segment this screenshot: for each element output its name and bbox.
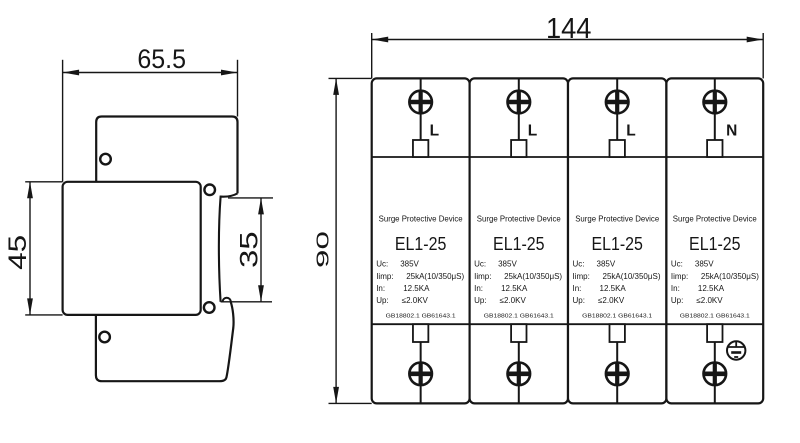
svg-text:L: L	[626, 123, 635, 140]
svg-text:GB18802.1 GB61643.1: GB18802.1 GB61643.1	[386, 313, 456, 319]
svg-text:Surge Protective Device: Surge Protective Device	[575, 215, 660, 224]
svg-text:Iimp:: Iimp:	[376, 272, 393, 281]
svg-text:L: L	[430, 123, 439, 140]
svg-text:In:: In:	[474, 284, 483, 293]
svg-text:65.5: 65.5	[137, 44, 186, 74]
svg-text:Uc:: Uc:	[671, 260, 683, 269]
svg-text:GB18802.1 GB61643.1: GB18802.1 GB61643.1	[484, 313, 554, 319]
svg-text:25kA(10/350μS): 25kA(10/350μS)	[603, 272, 661, 281]
svg-text:45: 45	[4, 235, 32, 270]
svg-text:N: N	[726, 123, 737, 140]
svg-text:12.5KA: 12.5KA	[403, 284, 430, 293]
svg-text:385V: 385V	[498, 260, 517, 269]
svg-text:12.5KA: 12.5KA	[698, 284, 725, 293]
svg-text:In:: In:	[376, 284, 385, 293]
svg-text:L: L	[528, 123, 537, 140]
svg-text:EL1-25: EL1-25	[395, 233, 447, 254]
svg-text:In:: In:	[573, 284, 582, 293]
svg-text:25kA(10/350μS): 25kA(10/350μS)	[701, 272, 759, 281]
svg-text:385V: 385V	[695, 260, 714, 269]
svg-text:Up:: Up:	[474, 296, 486, 305]
svg-text:12.5KA: 12.5KA	[501, 284, 528, 293]
svg-text:25kA(10/350μS): 25kA(10/350μS)	[406, 272, 464, 281]
svg-text:Up:: Up:	[573, 296, 585, 305]
svg-text:≤2.0KV: ≤2.0KV	[500, 296, 527, 305]
svg-text:Surge Protective Device: Surge Protective Device	[379, 215, 464, 224]
svg-text:GB18802.1 GB61643.1: GB18802.1 GB61643.1	[582, 313, 652, 319]
svg-text:Iimp:: Iimp:	[671, 272, 688, 281]
svg-text:25kA(10/350μS): 25kA(10/350μS)	[504, 272, 562, 281]
svg-text:Uc:: Uc:	[376, 260, 388, 269]
svg-text:EL1-25: EL1-25	[591, 233, 643, 254]
svg-text:In:: In:	[671, 284, 680, 293]
svg-text:Iimp:: Iimp:	[573, 272, 590, 281]
svg-text:144: 144	[546, 13, 592, 45]
svg-text:90: 90	[312, 231, 332, 268]
svg-text:385V: 385V	[400, 260, 419, 269]
svg-text:GB18802.1 GB61643.1: GB18802.1 GB61643.1	[680, 313, 750, 319]
svg-text:35: 35	[236, 231, 263, 268]
svg-text:≤2.0KV: ≤2.0KV	[402, 296, 429, 305]
svg-text:≤2.0KV: ≤2.0KV	[696, 296, 723, 305]
svg-text:Surge Protective Device: Surge Protective Device	[673, 215, 758, 224]
svg-text:385V: 385V	[597, 260, 616, 269]
svg-text:EL1-25: EL1-25	[689, 233, 741, 254]
svg-text:Up:: Up:	[671, 296, 683, 305]
svg-text:Uc:: Uc:	[474, 260, 486, 269]
svg-text:Uc:: Uc:	[573, 260, 585, 269]
svg-text:Up:: Up:	[376, 296, 388, 305]
svg-text:Iimp:: Iimp:	[474, 272, 491, 281]
svg-text:EL1-25: EL1-25	[493, 233, 545, 254]
svg-text:12.5KA: 12.5KA	[600, 284, 627, 293]
svg-text:Surge Protective Device: Surge Protective Device	[477, 215, 562, 224]
svg-text:≤2.0KV: ≤2.0KV	[598, 296, 625, 305]
